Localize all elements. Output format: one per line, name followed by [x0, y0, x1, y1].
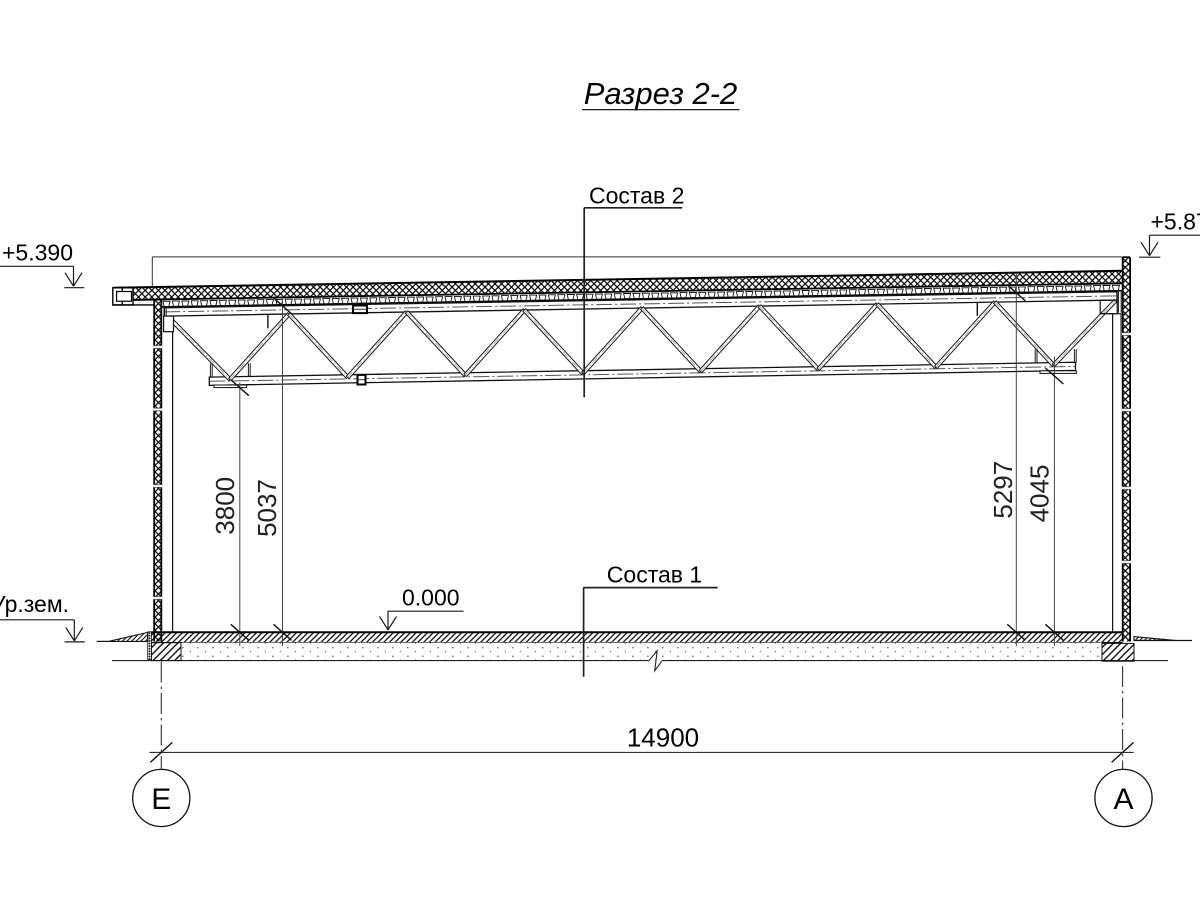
- svg-text:Е: Е: [151, 783, 171, 816]
- svg-text:+5.870: +5.870: [1151, 209, 1200, 235]
- svg-text:А: А: [1113, 783, 1133, 816]
- svg-text:Ур.зем.: Ур.зем.: [0, 591, 69, 617]
- svg-text:14900: 14900: [627, 723, 699, 753]
- svg-text:Состав 1: Состав 1: [607, 562, 702, 588]
- svg-text:Разрез 2-2: Разрез 2-2: [584, 76, 738, 111]
- svg-text:5297: 5297: [988, 461, 1018, 519]
- svg-text:Состав 2: Состав 2: [589, 182, 684, 208]
- svg-text:+5.390: +5.390: [2, 240, 73, 266]
- svg-text:0.000: 0.000: [402, 585, 460, 611]
- svg-text:3800: 3800: [210, 477, 240, 535]
- svg-text:4045: 4045: [1025, 465, 1055, 523]
- svg-text:5037: 5037: [252, 479, 282, 537]
